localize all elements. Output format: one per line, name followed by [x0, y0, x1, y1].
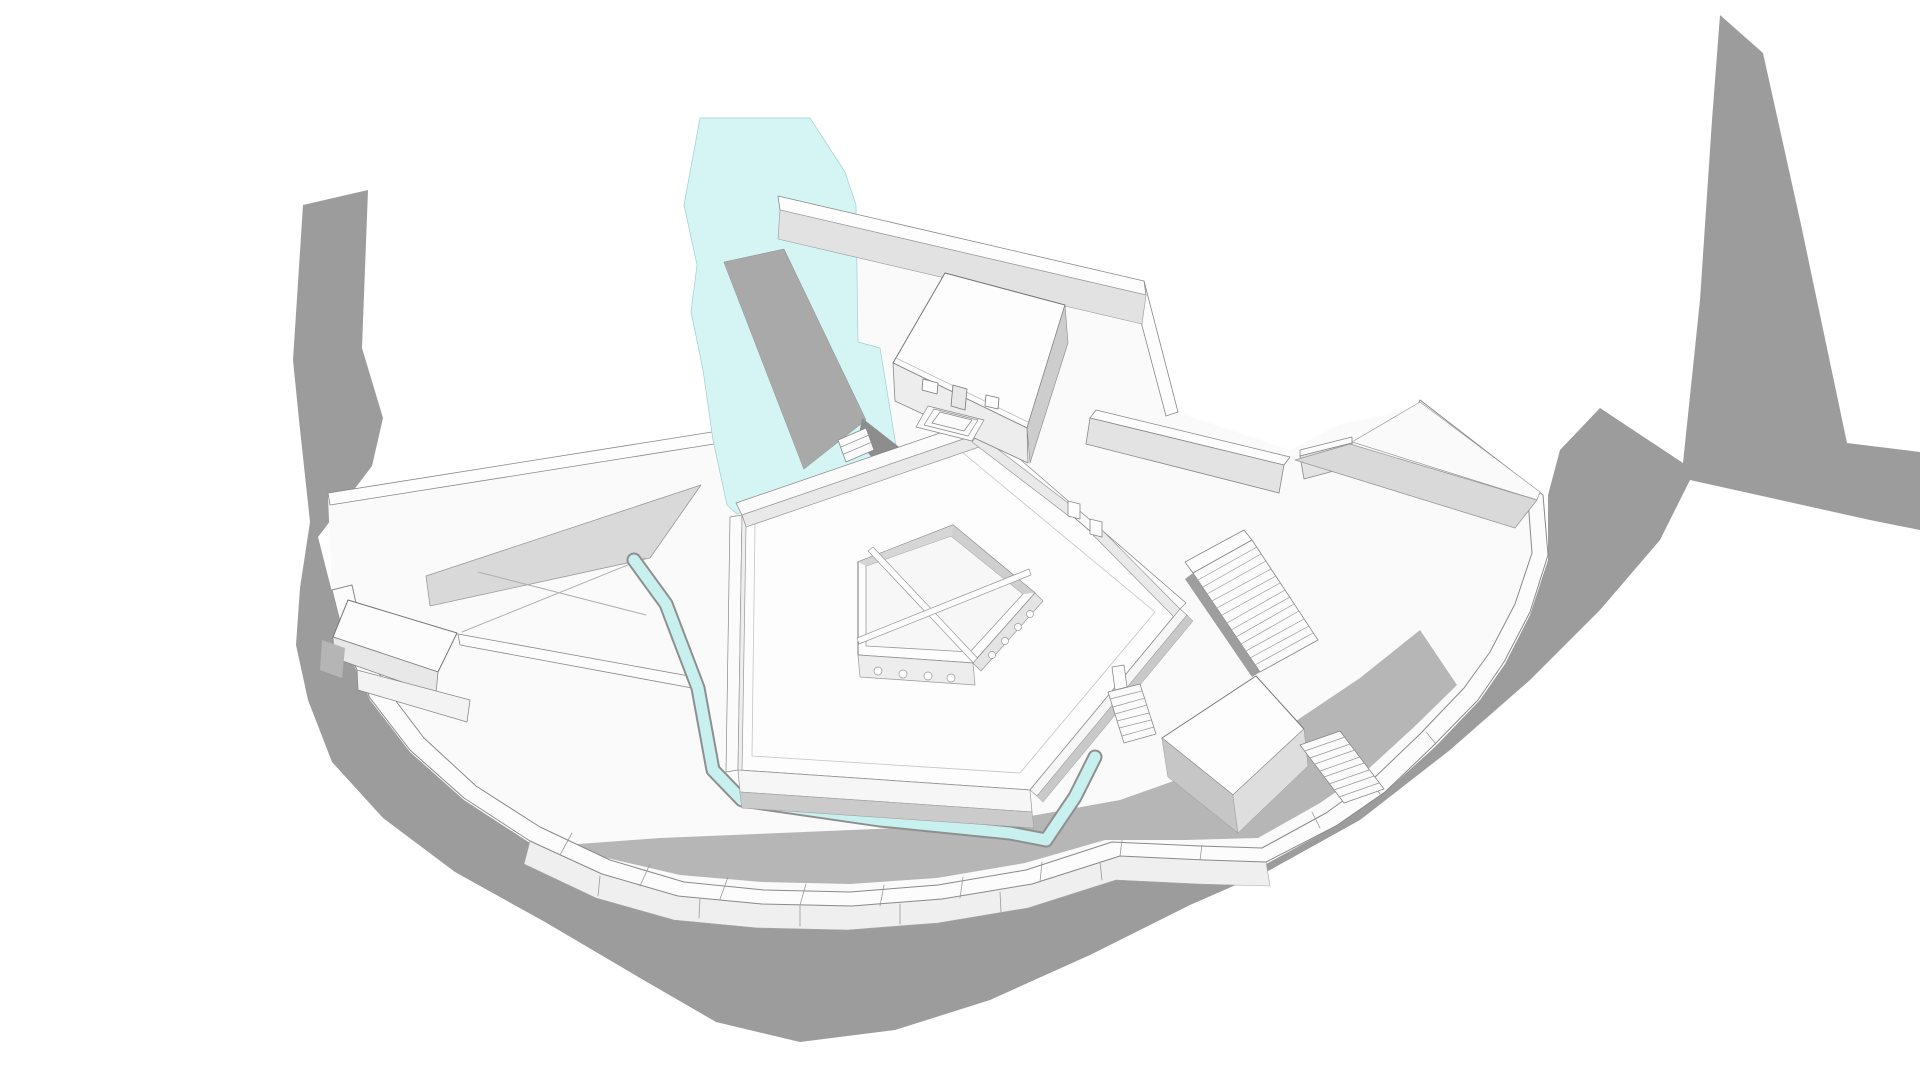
vent-arch-south-1	[874, 667, 882, 675]
vent-arch-east-1	[989, 652, 996, 659]
model-viewport	[0, 0, 1920, 1076]
parapet-gate-pillar-2	[1090, 519, 1102, 537]
gatehouse-door	[951, 385, 967, 410]
vent-arch-east-3	[1015, 624, 1022, 631]
vent-arch-south-3	[924, 672, 932, 680]
vent-arch-south-2	[899, 670, 907, 678]
parapet-gate-pillar-1	[1068, 501, 1080, 519]
site-model-canvas	[0, 0, 1920, 1076]
vent-arch-east-2	[1002, 638, 1009, 645]
vent-arch-east-4	[1027, 611, 1034, 618]
small-stair-pillar	[1112, 665, 1127, 690]
vent-arch-south-4	[947, 674, 955, 682]
